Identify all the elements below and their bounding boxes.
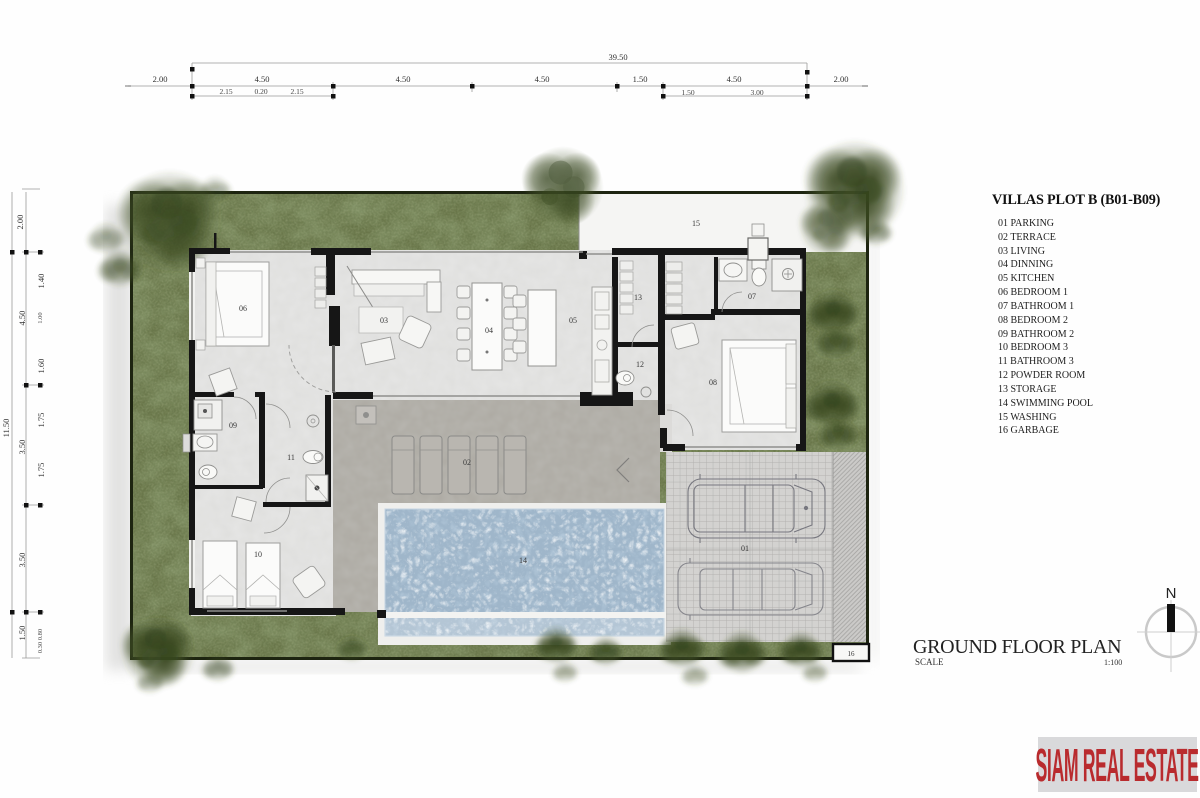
svg-text:2.00: 2.00 <box>153 74 168 84</box>
svg-text:2.00: 2.00 <box>834 74 849 84</box>
svg-text:2.15: 2.15 <box>219 87 232 96</box>
svg-text:1.75: 1.75 <box>36 463 46 478</box>
svg-text:01 PARKING: 01 PARKING <box>998 218 1054 229</box>
svg-text:GROUND FLOOR PLAN: GROUND FLOOR PLAN <box>913 636 1121 658</box>
svg-text:16 GARBAGE: 16 GARBAGE <box>998 425 1059 436</box>
svg-text:05: 05 <box>569 316 577 325</box>
svg-text:1.50: 1.50 <box>633 74 648 84</box>
svg-text:3.50: 3.50 <box>17 440 27 455</box>
svg-text:3.50: 3.50 <box>17 553 27 568</box>
svg-text:02: 02 <box>463 458 471 467</box>
svg-text:01: 01 <box>741 544 749 553</box>
svg-text:10 BEDROOM 3: 10 BEDROOM 3 <box>998 342 1068 353</box>
svg-text:02 TERRACE: 02 TERRACE <box>998 232 1056 243</box>
svg-text:12 POWDER ROOM: 12 POWDER ROOM <box>998 370 1085 381</box>
svg-text:14: 14 <box>519 556 527 565</box>
svg-text:1.50: 1.50 <box>17 626 27 641</box>
svg-text:10: 10 <box>254 550 262 559</box>
svg-text:1.60: 1.60 <box>36 359 46 374</box>
svg-text:11.50: 11.50 <box>1 419 11 438</box>
svg-text:06 BEDROOM 1: 06 BEDROOM 1 <box>998 287 1068 298</box>
svg-text:N: N <box>1166 585 1177 602</box>
svg-text:1.75: 1.75 <box>36 413 46 428</box>
svg-text:06: 06 <box>239 304 247 313</box>
svg-text:SIAM REAL ESTATE: SIAM REAL ESTATE <box>1035 740 1198 791</box>
svg-text:2.15: 2.15 <box>290 87 303 96</box>
svg-text:13 STORAGE: 13 STORAGE <box>998 384 1056 395</box>
svg-text:09: 09 <box>229 421 237 430</box>
svg-text:04 DINNING: 04 DINNING <box>998 259 1053 270</box>
svg-text:05 KITCHEN: 05 KITCHEN <box>998 273 1054 284</box>
svg-text:1.50: 1.50 <box>681 88 694 97</box>
svg-text:08: 08 <box>709 378 717 387</box>
svg-text:11: 11 <box>287 453 295 462</box>
svg-text:4.50: 4.50 <box>396 74 411 84</box>
svg-text:2.00: 2.00 <box>15 215 25 230</box>
svg-text:4.50: 4.50 <box>255 74 270 84</box>
svg-text:1.00: 1.00 <box>37 312 44 323</box>
svg-text:39.50: 39.50 <box>608 52 627 62</box>
svg-text:03: 03 <box>380 316 388 325</box>
svg-text:04: 04 <box>485 326 493 335</box>
svg-text:1:100: 1:100 <box>1104 658 1122 667</box>
svg-text:VILLAS PLOT B (B01-B09): VILLAS PLOT B (B01-B09) <box>992 192 1161 208</box>
svg-text:09 BATHROOM 2: 09 BATHROOM 2 <box>998 329 1074 340</box>
svg-text:0.30 0.80: 0.30 0.80 <box>37 629 44 653</box>
svg-text:1.40: 1.40 <box>36 274 46 289</box>
svg-text:3.00: 3.00 <box>750 88 763 97</box>
svg-text:0.20: 0.20 <box>254 87 267 96</box>
svg-text:11 BATHROOM 3: 11 BATHROOM 3 <box>998 356 1074 367</box>
svg-text:07 BATHROOM 1: 07 BATHROOM 1 <box>998 301 1074 312</box>
svg-text:07: 07 <box>748 292 756 301</box>
svg-text:SCALE: SCALE <box>915 657 944 667</box>
svg-text:14 SWIMMING POOL: 14 SWIMMING POOL <box>998 398 1093 409</box>
svg-text:15 WASHING: 15 WASHING <box>998 412 1056 423</box>
svg-text:4.50: 4.50 <box>535 74 550 84</box>
svg-text:4.50: 4.50 <box>727 74 742 84</box>
svg-text:03 LIVING: 03 LIVING <box>998 246 1045 257</box>
svg-text:08 BEDROOM 2: 08 BEDROOM 2 <box>998 315 1068 326</box>
svg-text:16: 16 <box>848 650 856 658</box>
svg-text:15: 15 <box>692 219 700 228</box>
svg-text:12: 12 <box>636 360 644 369</box>
svg-text:13: 13 <box>634 293 642 302</box>
svg-text:4.50: 4.50 <box>17 311 27 326</box>
